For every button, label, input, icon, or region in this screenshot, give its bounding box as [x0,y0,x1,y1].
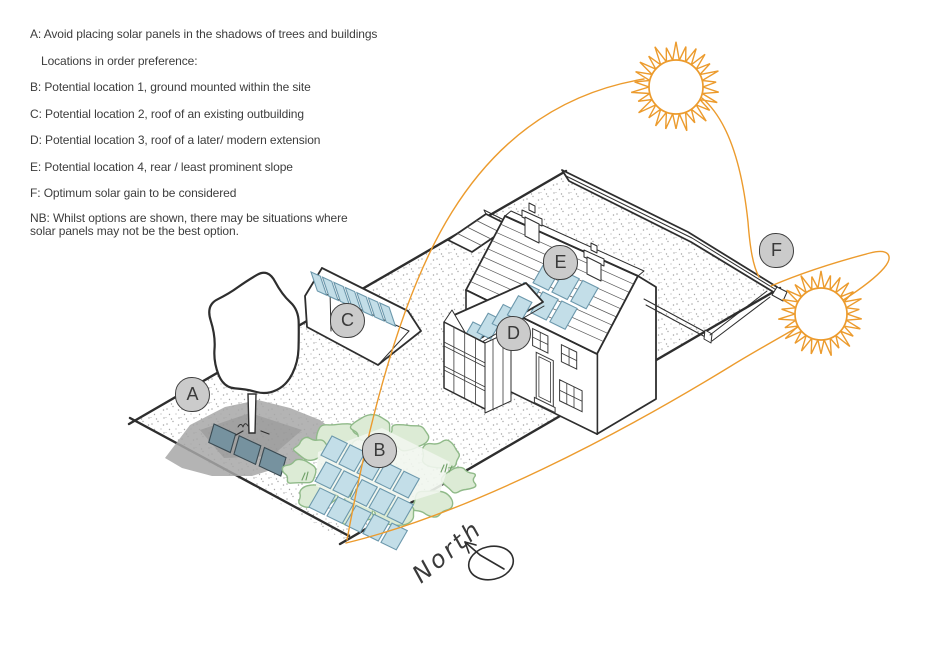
note-line-nb: NB: Whilst options are shown, there may … [30,212,348,239]
morning-sun-body [649,60,703,114]
note-line-d: D: Potential location 3, roof of a later… [30,127,370,154]
note-line-locations: Locations in order preference: [30,48,370,75]
location-marker-e: E [543,245,578,280]
evening-sun [778,271,861,356]
tree-crown [209,273,299,393]
location-marker-c: C [330,303,365,338]
note-line-e: E: Potential location 4, rear / least pr… [30,154,370,181]
evening-sun-body [795,288,847,340]
location-marker-a: A [175,377,210,412]
north-indicator: North [407,514,517,588]
notes-panel: A: Avoid placing solar panels in the sha… [30,21,370,239]
location-marker-f: F [759,233,794,268]
note-line-b: B: Potential location 1, ground mounted … [30,74,370,101]
location-marker-b: B [362,433,397,468]
note-line-a: A: Avoid placing solar panels in the sha… [30,21,370,48]
morning-sun [631,42,719,131]
tree-trunk [248,394,256,433]
solar-placement-diagram: North A: Avoid placing solar panels in t… [0,0,940,665]
location-marker-d: D [496,316,531,351]
note-line-f: F: Optimum solar gain to be considered [30,180,370,207]
note-line-c: C: Potential location 2, roof of an exis… [30,101,370,128]
